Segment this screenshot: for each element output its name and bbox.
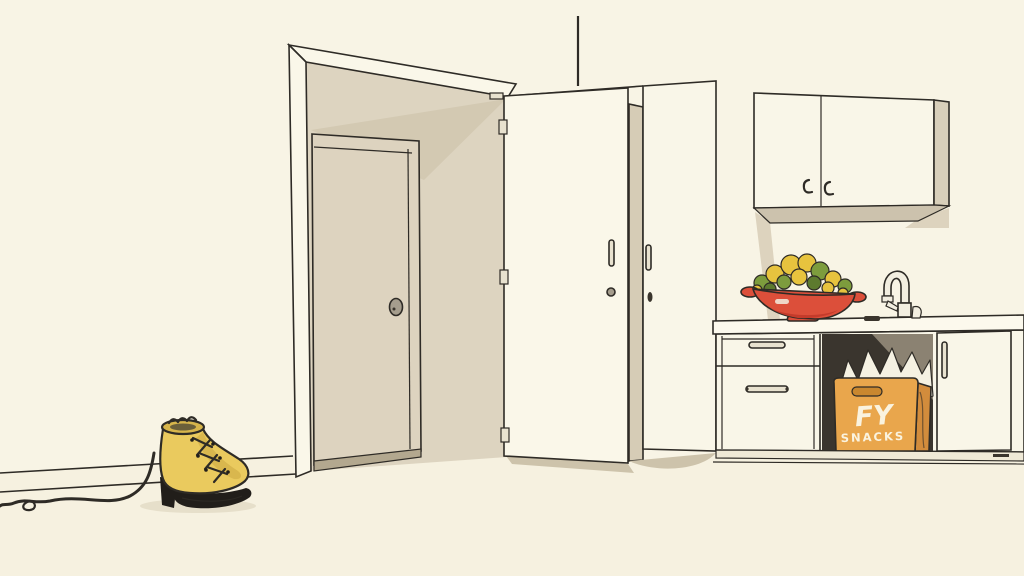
drawer-handle-bottom — [746, 386, 788, 392]
open-door — [490, 88, 634, 473]
faucet-sprayer — [912, 307, 921, 318]
tall-cabinet-front — [643, 81, 716, 451]
upper-cabinet-underside — [754, 205, 949, 223]
upper-cabinet-side — [934, 100, 949, 206]
bowl-highlight — [775, 299, 789, 304]
drawer-handle-top — [749, 342, 785, 348]
inner-door-knob — [390, 299, 403, 316]
cabinet-door-right — [937, 331, 1011, 451]
snack-box-handle-slot — [852, 387, 882, 396]
open-door-panel — [504, 88, 628, 463]
counter-dark-item — [864, 316, 880, 321]
doorway — [289, 45, 516, 477]
open-cavity: FY SNACKS — [822, 334, 933, 451]
tall-cabinet-side — [629, 104, 643, 461]
door-hinge-top — [499, 120, 507, 134]
cabinet-door-handle — [942, 342, 947, 378]
illustration-kitchen-scene: FY SNACKS — [0, 0, 1024, 576]
upper-cabinet-front — [754, 93, 934, 208]
door-hinge-bottom — [501, 428, 509, 442]
open-door-knob — [607, 288, 615, 296]
tall-cabinet-handle — [646, 245, 651, 270]
inner-door — [312, 134, 421, 465]
faucet-base — [898, 303, 911, 317]
open-door-handle — [609, 240, 614, 266]
tall-cabinet-knob — [648, 292, 653, 302]
snack-box-logo: FY — [854, 400, 897, 434]
door-hinge-middle — [500, 270, 508, 284]
snack-box-label: SNACKS — [841, 429, 906, 445]
kitchen-counter: FY SNACKS — [713, 315, 1024, 464]
snack-box: FY SNACKS — [834, 378, 931, 451]
floor — [0, 451, 1024, 576]
door-hinge-lintel — [490, 93, 503, 99]
